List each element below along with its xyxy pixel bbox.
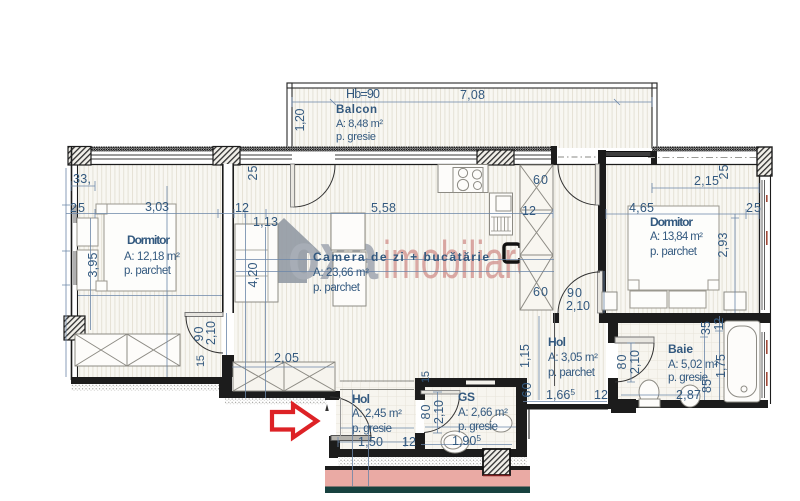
svg-text:p. gresie: p. gresie (458, 421, 498, 433)
svg-text:2,15: 2,15 (694, 174, 719, 188)
svg-text:A: 8,48 m²: A: 8,48 m² (336, 118, 383, 130)
svg-text:3,95: 3,95 (86, 252, 100, 277)
svg-text:60: 60 (520, 382, 534, 397)
svg-text:12: 12 (594, 388, 608, 402)
svg-text:1,13: 1,13 (253, 215, 278, 229)
svg-text:4,65: 4,65 (629, 201, 654, 215)
svg-text:60: 60 (533, 173, 548, 187)
svg-text:12: 12 (235, 201, 249, 215)
svg-text:A: 2,66 m²: A: 2,66 m² (458, 407, 508, 419)
svg-text:2,10: 2,10 (566, 299, 590, 313)
svg-text:Hol: Hol (548, 335, 566, 349)
svg-text:Hb=90: Hb=90 (346, 87, 380, 101)
svg-text:GS: GS (458, 390, 475, 404)
svg-text:85: 85 (700, 379, 714, 393)
svg-text:12: 12 (402, 435, 416, 449)
svg-text:p. parchet: p. parchet (650, 246, 698, 258)
svg-text:1,20: 1,20 (293, 108, 307, 131)
svg-text:15: 15 (195, 355, 207, 367)
svg-text:1,50: 1,50 (358, 435, 383, 449)
svg-text:Baie: Baie (668, 342, 693, 356)
svg-text:3,03: 3,03 (145, 200, 169, 214)
svg-text:p. parchet: p. parchet (313, 282, 361, 294)
svg-text:A: 13,84 m²: A: 13,84 m² (650, 231, 703, 243)
svg-text:A: 12,18 m²: A: 12,18 m² (124, 251, 180, 263)
svg-text:Camera de zi + bucătărie: Camera de zi + bucătărie (313, 250, 489, 264)
svg-text:60: 60 (533, 285, 548, 299)
svg-text:2,05: 2,05 (274, 351, 299, 365)
svg-text:90: 90 (567, 286, 582, 300)
svg-text:4,20: 4,20 (246, 262, 260, 287)
svg-text:Balcon: Balcon (336, 104, 377, 116)
svg-text:25: 25 (246, 165, 260, 180)
svg-text:A: 23,66 m²: A: 23,66 m² (313, 267, 369, 279)
svg-text:12: 12 (712, 317, 726, 330)
svg-text:2,87: 2,87 (676, 388, 701, 402)
svg-text:80: 80 (419, 404, 433, 419)
svg-text:p. parchet: p. parchet (548, 367, 596, 379)
svg-text:p. parchet: p. parchet (124, 265, 172, 277)
svg-text:33,: 33, (73, 172, 91, 186)
svg-text:A: 3,05 m²: A: 3,05 m² (548, 352, 598, 364)
svg-text:1,15: 1,15 (518, 344, 532, 368)
svg-text:15: 15 (420, 371, 432, 383)
svg-text:Dormitor: Dormitor (127, 233, 170, 247)
svg-text:2,10: 2,10 (204, 321, 218, 345)
svg-text:1,75: 1,75 (714, 354, 728, 378)
svg-text:Hol: Hol (352, 392, 370, 406)
svg-text:A: 5,02 m²: A: 5,02 m² (668, 359, 718, 371)
svg-text:2,10: 2,10 (432, 400, 446, 424)
svg-text:2,93: 2,93 (716, 232, 730, 257)
svg-text:25: 25 (746, 201, 761, 215)
svg-text:5,58: 5,58 (371, 201, 396, 215)
svg-text:80: 80 (615, 354, 629, 369)
svg-text:p. gresie: p. gresie (336, 131, 376, 143)
svg-text:2,10: 2,10 (628, 350, 642, 374)
svg-text:25: 25 (70, 201, 85, 215)
svg-text:A: 2,45 m²: A: 2,45 m² (352, 408, 402, 420)
svg-text:12: 12 (522, 204, 536, 218)
svg-text:35: 35 (699, 321, 713, 335)
svg-text:Dormitor: Dormitor (650, 215, 693, 229)
svg-text:25: 25 (717, 164, 731, 179)
svg-text:7,08: 7,08 (460, 88, 485, 102)
svg-text:p. gresie: p. gresie (352, 423, 392, 435)
